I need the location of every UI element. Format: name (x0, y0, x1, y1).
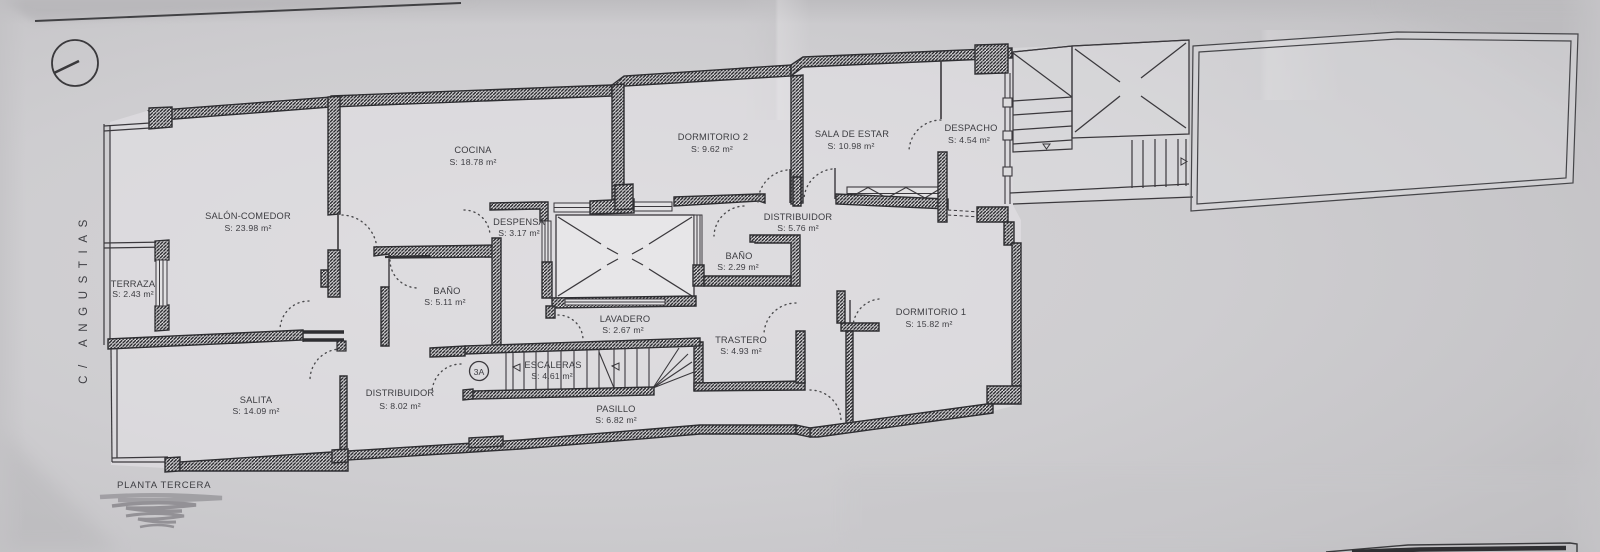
svg-text:PASILLO: PASILLO (596, 404, 635, 414)
svg-text:ESCALERAS: ESCALERAS (524, 360, 581, 370)
svg-text:PLANTA TERCERA: PLANTA TERCERA (117, 480, 211, 491)
svg-text:S: 10.98 m²: S: 10.98 m² (827, 141, 874, 151)
svg-text:S: 18.78 m²: S: 18.78 m² (449, 157, 496, 167)
svg-text:TERRAZA: TERRAZA (111, 279, 156, 289)
svg-text:S: 4.93 m²: S: 4.93 m² (720, 346, 762, 356)
svg-text:TRASTERO: TRASTERO (715, 335, 767, 345)
svg-text:COCINA: COCINA (454, 145, 492, 155)
svg-text:DORMITORIO 1: DORMITORIO 1 (896, 307, 966, 317)
svg-text:DISTRIBUIDOR: DISTRIBUIDOR (366, 388, 435, 398)
svg-text:S: 3.17 m²: S: 3.17 m² (498, 228, 540, 238)
svg-text:S: 14.09 m²: S: 14.09 m² (232, 406, 279, 416)
svg-text:BAÑO: BAÑO (433, 286, 460, 296)
svg-text:SALA DE ESTAR: SALA DE ESTAR (815, 129, 889, 139)
svg-text:S: 15.82 m²: S: 15.82 m² (905, 319, 952, 329)
svg-text:SALITA: SALITA (240, 395, 273, 405)
svg-text:LAVADERO: LAVADERO (600, 314, 650, 324)
svg-text:S: 2.43 m²: S: 2.43 m² (112, 289, 154, 299)
svg-text:S: 9.62 m²: S: 9.62 m² (691, 144, 733, 154)
svg-text:S: 4.54 m²: S: 4.54 m² (948, 135, 990, 145)
svg-text:DISTRIBUIDOR: DISTRIBUIDOR (764, 212, 833, 222)
svg-text:BAÑO: BAÑO (726, 251, 753, 261)
svg-text:S: 8.02 m²: S: 8.02 m² (379, 401, 421, 411)
svg-text:DESPENSA: DESPENSA (493, 217, 545, 227)
svg-text:C/ ANGUSTIAS: C/ ANGUSTIAS (78, 212, 90, 384)
svg-text:S: 2.67 m²: S: 2.67 m² (602, 325, 644, 335)
svg-text:DESPACHO: DESPACHO (944, 123, 997, 133)
svg-text:S: 6.82 m²: S: 6.82 m² (595, 415, 637, 425)
svg-text:DORMITORIO 2: DORMITORIO 2 (678, 132, 748, 142)
svg-text:SALÓN-COMEDOR: SALÓN-COMEDOR (205, 211, 291, 221)
svg-text:S: 5.11 m²: S: 5.11 m² (424, 297, 465, 307)
svg-text:S: 23.98 m²: S: 23.98 m² (224, 223, 271, 233)
svg-text:S: 4.61 m²: S: 4.61 m² (531, 371, 573, 381)
svg-text:S: 5.76 m²: S: 5.76 m² (777, 223, 819, 233)
svg-text:3A: 3A (474, 367, 485, 377)
svg-text:S: 2.29 m²: S: 2.29 m² (717, 262, 759, 272)
